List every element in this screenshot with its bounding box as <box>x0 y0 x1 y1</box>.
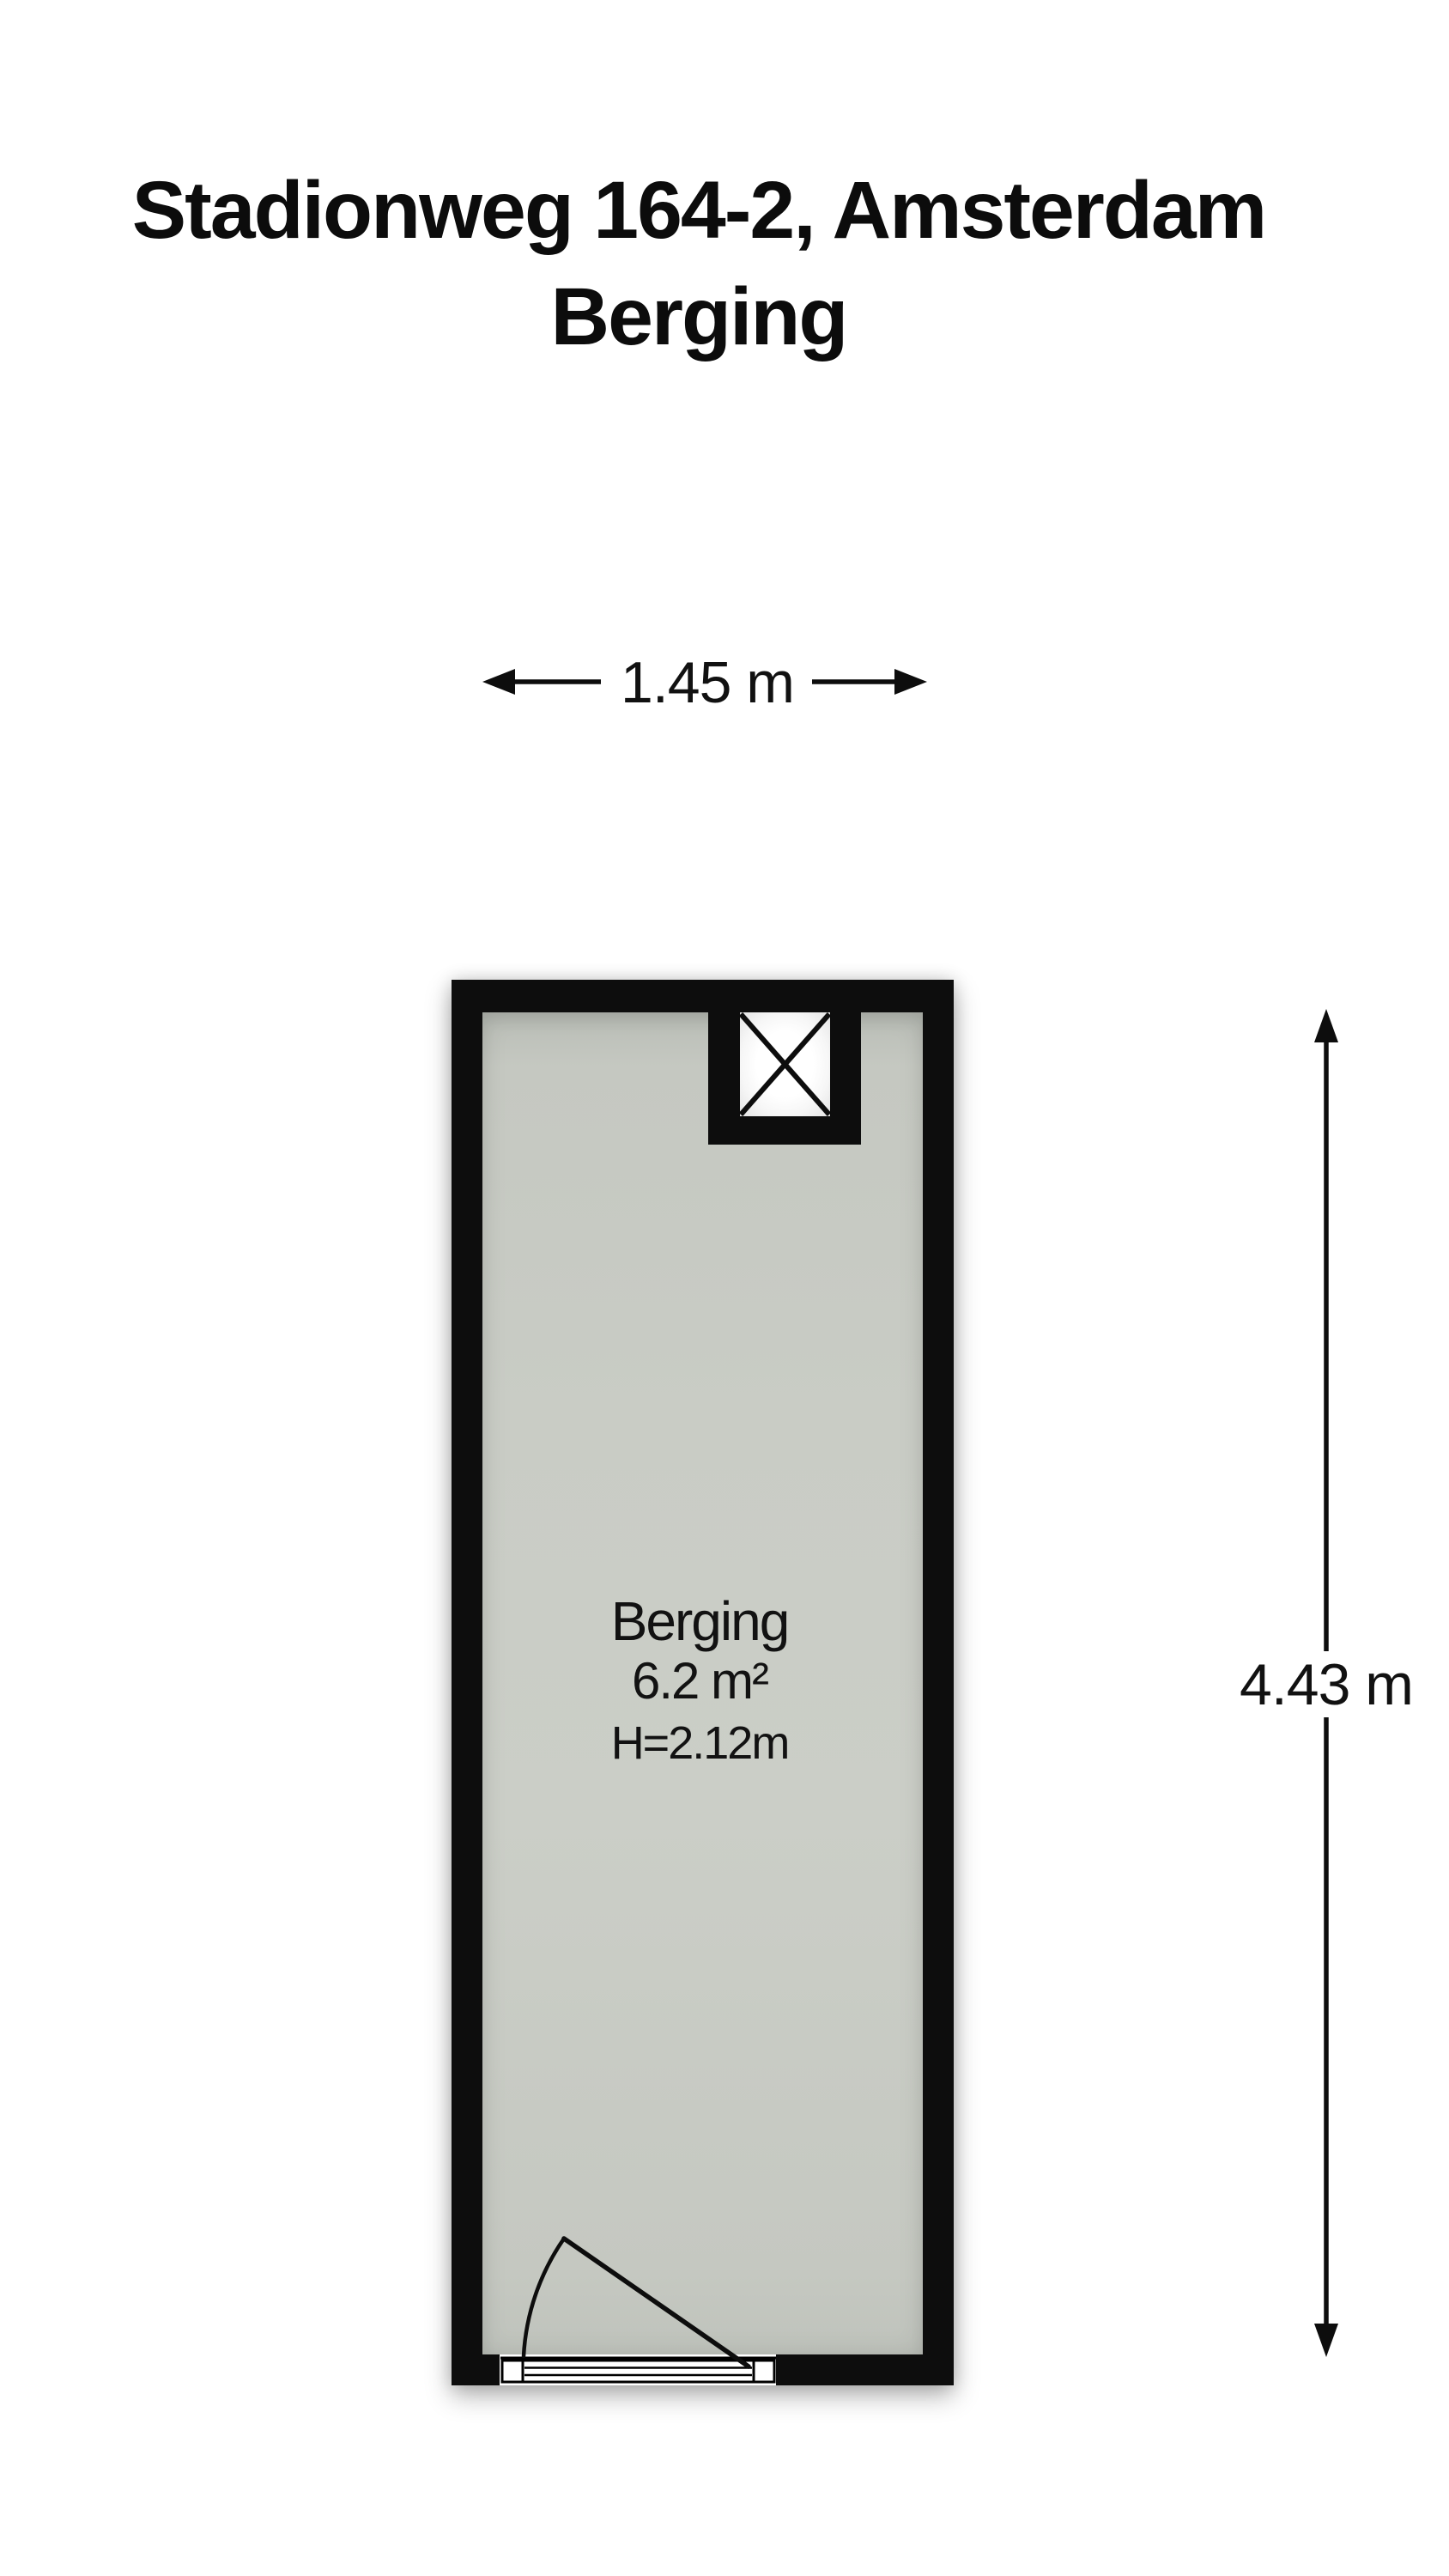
room-ceiling-height-label: H=2.12m <box>611 1717 789 1769</box>
arrow-right-icon <box>894 669 927 695</box>
arrow-down-icon <box>1314 2324 1338 2357</box>
shaft-crossed-box-icon <box>740 1012 830 1116</box>
depth-dimension-label: 4.43 m <box>1240 1651 1413 1718</box>
page-title-room: Berging <box>0 261 1397 373</box>
room-name-label: Berging <box>611 1594 789 1649</box>
arrow-left-icon <box>482 669 515 695</box>
floorplan-page: { "title": { "line1": "Stadionweg 164-2,… <box>0 0 1449 2576</box>
room-area-label: 6.2 m² <box>611 1654 789 1709</box>
room-label: Berging 6.2 m² H=2.12m <box>611 1594 789 1769</box>
page-title: Stadionweg 164-2, Amsterdam Berging <box>0 160 1449 373</box>
shaft-block <box>708 1012 861 1145</box>
page-title-address: Stadionweg 164-2, Amsterdam <box>0 160 1397 261</box>
width-dimension-label: 1.45 m <box>621 649 794 716</box>
arrow-up-icon <box>1314 1009 1338 1042</box>
